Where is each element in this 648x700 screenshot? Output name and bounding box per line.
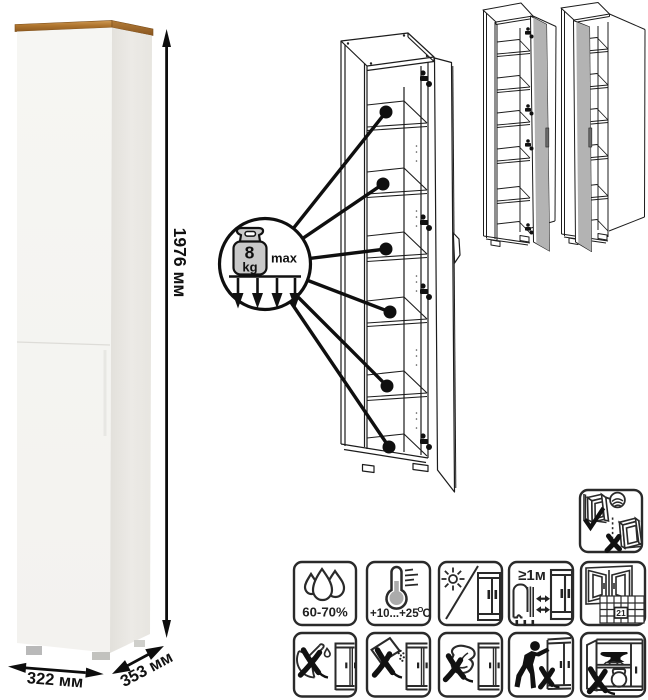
svg-text:max: max (271, 251, 298, 266)
svg-text:kg: kg (242, 260, 257, 275)
svg-text:C: C (423, 608, 431, 620)
svg-text:≥1м: ≥1м (518, 567, 546, 584)
svg-text:1976 мм: 1976 мм (170, 228, 190, 298)
svg-text:21: 21 (616, 608, 626, 618)
svg-text:60-70%: 60-70% (302, 605, 348, 620)
svg-text:+10...+25: +10...+25 (370, 608, 419, 620)
svg-text:322 мм: 322 мм (26, 669, 84, 691)
